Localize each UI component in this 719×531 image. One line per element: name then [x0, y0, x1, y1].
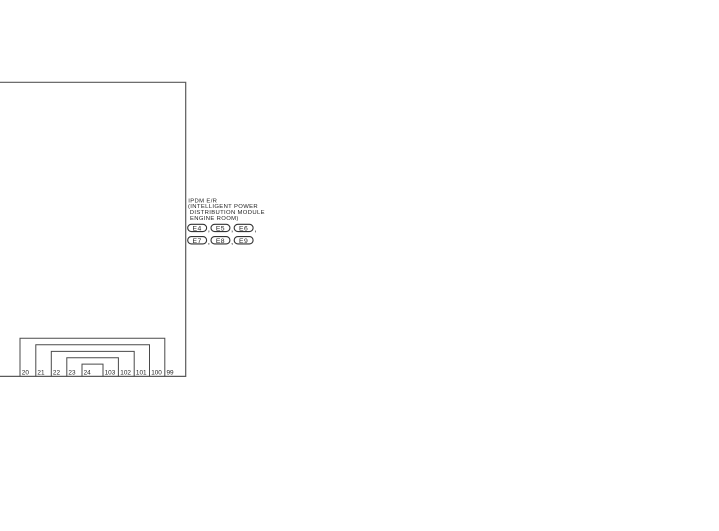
- svg-text:102: 102: [120, 370, 131, 377]
- svg-text:E5: E5: [216, 226, 225, 233]
- svg-text:22: 22: [53, 370, 61, 377]
- svg-text:99: 99: [167, 370, 175, 377]
- svg-text:E8: E8: [216, 238, 225, 245]
- svg-text:21: 21: [37, 370, 45, 377]
- svg-text:,: ,: [208, 237, 210, 246]
- svg-text:,: ,: [254, 225, 256, 234]
- svg-text:E6: E6: [239, 226, 248, 233]
- svg-text:E9: E9: [239, 238, 248, 245]
- svg-text:,: ,: [208, 225, 210, 234]
- svg-text:23: 23: [68, 370, 76, 377]
- svg-text:24: 24: [84, 370, 92, 377]
- svg-text:E7: E7: [193, 238, 202, 245]
- svg-text:,: ,: [231, 225, 233, 234]
- svg-text:100: 100: [151, 370, 162, 377]
- svg-text:20: 20: [22, 370, 30, 377]
- svg-text:E4: E4: [193, 226, 202, 233]
- svg-text:ENGINE ROOM): ENGINE ROOM): [190, 216, 239, 222]
- svg-text:,: ,: [231, 237, 233, 246]
- svg-text:103: 103: [105, 370, 116, 377]
- svg-text:101: 101: [136, 370, 147, 377]
